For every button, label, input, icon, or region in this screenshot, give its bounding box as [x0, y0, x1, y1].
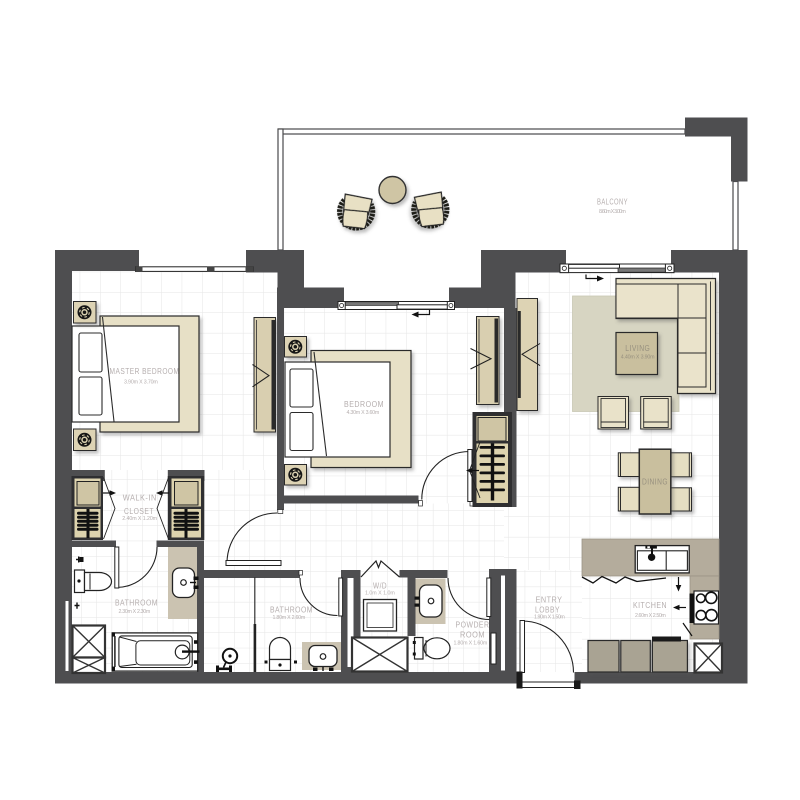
svg-text:WALK-IN: WALK-IN [123, 493, 157, 503]
svg-text:BATHROOM: BATHROOM [270, 605, 313, 615]
svg-text:1.90m X 1.50m: 1.90m X 1.50m [534, 615, 565, 621]
svg-text:LIVING: LIVING [625, 343, 650, 353]
svg-text:8.60m X 3.00m: 8.60m X 3.00m [599, 209, 626, 215]
svg-text:MASTER BEDROOM: MASTER BEDROOM [110, 366, 180, 376]
svg-text:POWDER: POWDER [456, 620, 490, 630]
svg-text:BEDROOM: BEDROOM [344, 399, 384, 409]
svg-text:4.40m X 3.90m: 4.40m X 3.90m [621, 355, 655, 361]
svg-text:2.40m X 1.20m: 2.40m X 1.20m [122, 516, 157, 522]
svg-text:3.90m X 3.70m: 3.90m X 3.70m [124, 380, 158, 386]
svg-text:CLOSET: CLOSET [124, 506, 154, 516]
svg-text:W/D: W/D [373, 581, 387, 591]
svg-text:BALCONY: BALCONY [597, 197, 628, 207]
svg-text:1.80m X 2.60m: 1.80m X 2.60m [273, 615, 306, 621]
svg-text:1.0m X 1.0m: 1.0m X 1.0m [365, 591, 395, 597]
svg-text:4.30m X 3.60m: 4.30m X 3.60m [347, 410, 380, 416]
svg-text:DINING: DINING [642, 477, 668, 487]
svg-text:LOBBY: LOBBY [535, 605, 560, 615]
svg-text:1.80m X 1.60m: 1.80m X 1.60m [454, 641, 488, 647]
svg-text:KITCHEN: KITCHEN [633, 600, 667, 610]
svg-text:ENTRY: ENTRY [536, 595, 563, 605]
svg-text:2.30m X 2.30m: 2.30m X 2.30m [119, 609, 151, 615]
svg-text:ROOM: ROOM [460, 630, 485, 640]
svg-text:BATHROOM: BATHROOM [115, 598, 158, 608]
svg-text:2.60m X 2.50m: 2.60m X 2.50m [635, 613, 666, 619]
